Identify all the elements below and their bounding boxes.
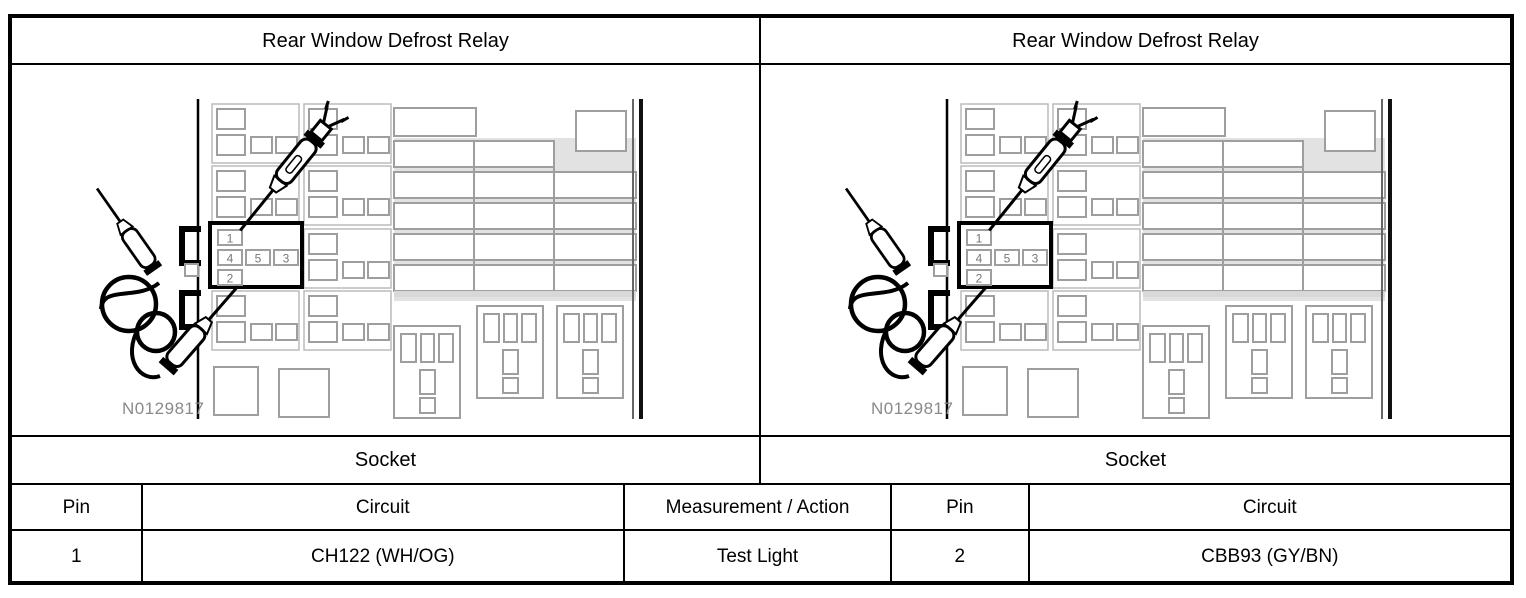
panel-title-right: Rear Window Defrost Relay [761, 18, 1510, 65]
pinpoint-test-table: Rear Window Defrost Relay Rear Window De… [8, 14, 1514, 585]
diagram-cell-left [12, 65, 761, 437]
fuse-panel-illustration-left [84, 89, 654, 424]
socket-label-right: Socket [761, 437, 1510, 485]
pin-value-right: 2 [892, 531, 1030, 581]
fuse-panel-illustration-right [833, 89, 1403, 424]
pin-value-left: 1 [12, 531, 143, 581]
panel-section: Rear Window Defrost Relay Rear Window De… [12, 18, 1510, 485]
diagram-cell-right [761, 65, 1510, 437]
circuit-value-left: CH122 (WH/OG) [143, 531, 625, 581]
measurement-action-value: Test Light [625, 531, 892, 581]
column-header-pin-right: Pin [892, 485, 1030, 531]
document-page: Rear Window Defrost Relay Rear Window De… [0, 0, 1526, 598]
column-header-pin-left: Pin [12, 485, 143, 531]
socket-label-left: Socket [12, 437, 761, 485]
column-header-circuit-right: Circuit [1030, 485, 1510, 531]
circuit-value-right: CBB93 (GY/BN) [1030, 531, 1510, 581]
panel-title-left: Rear Window Defrost Relay [12, 18, 761, 65]
column-header-measurement-action: Measurement / Action [625, 485, 892, 531]
column-header-circuit-left: Circuit [143, 485, 625, 531]
pin-circuit-table: Pin Circuit Measurement / Action Pin Cir… [12, 485, 1510, 581]
